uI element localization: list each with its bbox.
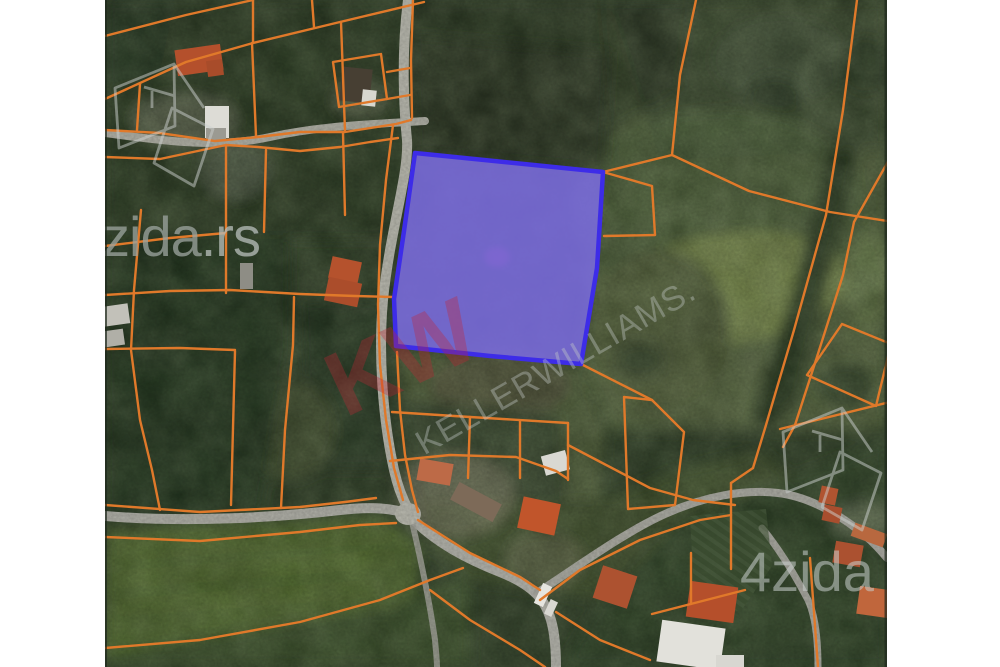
svg-text:zida.rs: zida.rs [105, 205, 260, 268]
svg-text:4zida: 4zida [740, 540, 875, 603]
